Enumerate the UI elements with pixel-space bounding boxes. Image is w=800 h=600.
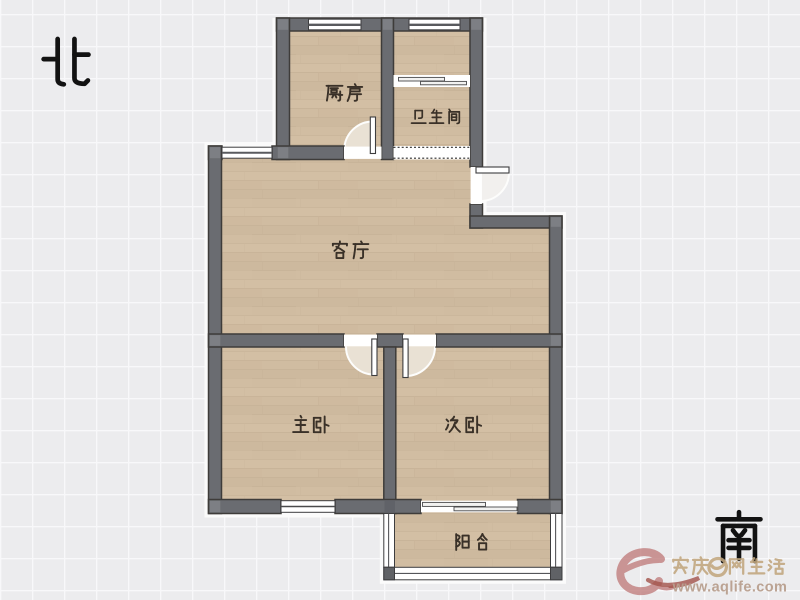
svg-text:www.aqlife.com: www.aqlife.com (672, 580, 788, 596)
